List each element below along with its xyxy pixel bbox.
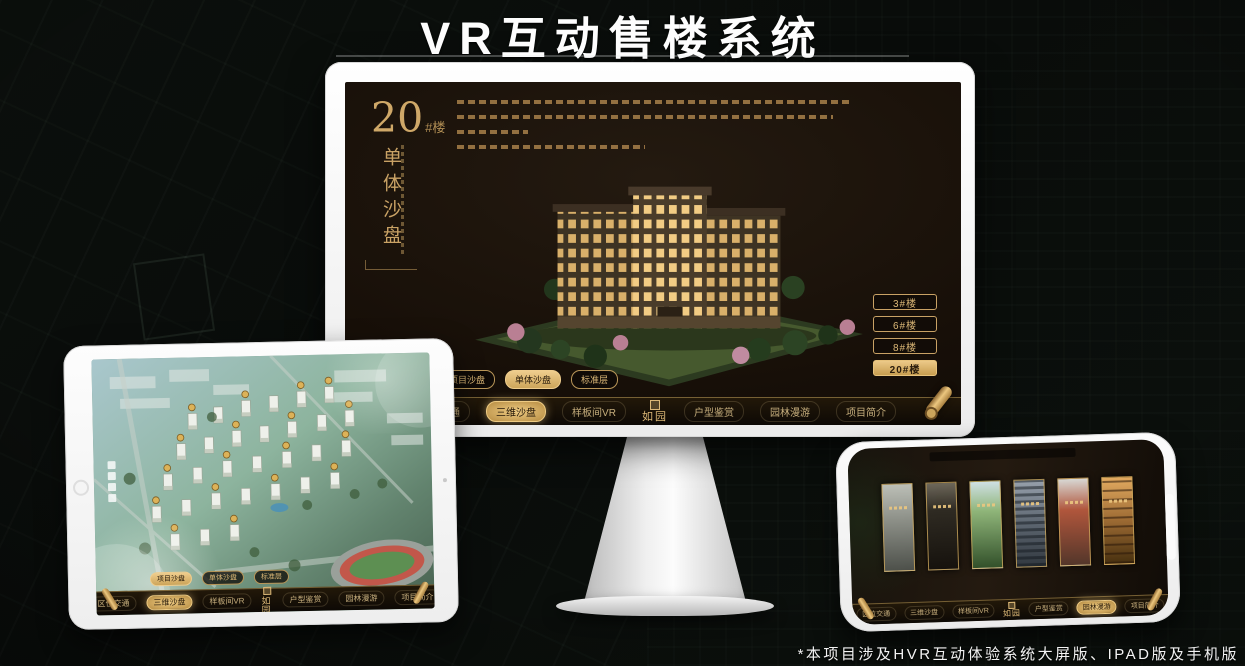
scene-gallery <box>848 447 1168 601</box>
tab-project-sandbox[interactable]: 项目沙盘 <box>150 571 192 586</box>
seal-icon <box>650 400 660 410</box>
phone-device: 区位交通 三维沙盘 样板间VR 如园 户型鉴赏 园林漫游 项目简介 <box>835 432 1181 633</box>
nav-item-floorplans[interactable]: 户型鉴赏 <box>1029 601 1069 616</box>
view-tabs: 项目沙盘 单体沙盘 标准层 <box>439 370 618 389</box>
brand-logo: 如园 <box>642 400 668 423</box>
marketing-poster: VR互动售楼系统 20#楼 单体沙盘 <box>0 0 1245 666</box>
tablet-screen: 项目沙盘 单体沙盘 标准层 区位交通 三维沙盘 样板间VR 如园 户型鉴赏 园林… <box>91 352 434 615</box>
hero-bracket-line <box>365 260 417 270</box>
page-title: VR互动售楼系统 <box>0 2 1245 67</box>
building-button-20[interactable]: 20#楼 <box>873 360 937 376</box>
building-button-3[interactable]: 3#楼 <box>873 294 937 310</box>
scene-card-interior-dark[interactable] <box>925 482 959 571</box>
text-line <box>457 115 833 119</box>
building-selector: 3#楼 6#楼 8#楼 20#楼 <box>873 294 937 376</box>
nav-item-showroom-vr[interactable]: 样板间VR <box>562 401 626 422</box>
building-hero-title: 20#楼 单体沙盘 <box>371 98 445 265</box>
nav-item-floorplans[interactable]: 户型鉴赏 <box>282 592 328 608</box>
tab-single-sandbox[interactable]: 单体沙盘 <box>202 570 244 585</box>
scene-card-interior-warm[interactable] <box>1101 476 1135 565</box>
tab-standard-floor[interactable]: 标准层 <box>254 569 289 584</box>
nav-item-project-intro[interactable]: 项目简介 <box>1125 598 1165 613</box>
nav-item-3d-sandbox[interactable]: 三维沙盘 <box>486 401 546 422</box>
nav-item-3d-sandbox[interactable]: 三维沙盘 <box>904 605 944 620</box>
phone-screen: 区位交通 三维沙盘 样板间VR 如园 户型鉴赏 园林漫游 项目简介 <box>847 439 1168 625</box>
scene-card-building[interactable] <box>1013 479 1047 568</box>
tablet-view-tabs: 项目沙盘 单体沙盘 标准层 <box>150 569 289 586</box>
brand-logo: 如园 <box>261 586 273 614</box>
monitor-stand-base <box>556 596 774 616</box>
tab-single-sandbox[interactable]: 单体沙盘 <box>505 370 561 389</box>
nav-item-showroom-vr[interactable]: 样板间VR <box>952 603 995 618</box>
road-name-label <box>107 461 116 502</box>
building-number-unit: #楼 <box>425 120 445 135</box>
text-line <box>457 100 849 104</box>
nav-item-garden-tour[interactable]: 园林漫游 <box>338 590 384 606</box>
tablet-camera-dot <box>443 478 447 482</box>
scene-card-landscape[interactable] <box>969 480 1003 569</box>
text-line <box>457 130 528 134</box>
nav-item-floorplans[interactable]: 户型鉴赏 <box>684 401 744 422</box>
brand-logo: 如园 <box>1003 602 1021 619</box>
nav-item-project-intro[interactable]: 项目简介 <box>836 401 896 422</box>
tablet-home-button[interactable] <box>73 480 89 496</box>
nav-item-3d-sandbox[interactable]: 三维沙盘 <box>146 594 192 610</box>
scene-card-courtyard[interactable] <box>881 483 915 572</box>
cloud-haze <box>309 352 435 434</box>
building-3d-render[interactable] <box>457 144 881 396</box>
building-button-8[interactable]: 8#楼 <box>873 338 937 354</box>
hero-english-caption <box>401 142 404 254</box>
building-number: 20 <box>371 94 423 142</box>
nav-item-showroom-vr[interactable]: 样板间VR <box>202 593 251 609</box>
building-button-6[interactable]: 6#楼 <box>873 316 937 332</box>
nav-item-garden-tour[interactable]: 园林漫游 <box>1077 600 1117 615</box>
tab-standard-floor[interactable]: 标准层 <box>571 370 618 389</box>
tablet-device: 项目沙盘 单体沙盘 标准层 区位交通 三维沙盘 样板间VR 如园 户型鉴赏 园林… <box>63 338 459 630</box>
nav-item-garden-tour[interactable]: 园林漫游 <box>760 401 820 422</box>
footnote-text: *本项目涉及HVR互动体验系统大屏版、IPAD版及手机版 <box>798 643 1239 664</box>
scene-card-autumn[interactable] <box>1057 477 1091 566</box>
phone-notch <box>1165 494 1176 560</box>
title-underline <box>336 55 909 57</box>
seal-icon <box>263 586 271 594</box>
hero-subtitle: 单体沙盘 <box>377 147 404 265</box>
